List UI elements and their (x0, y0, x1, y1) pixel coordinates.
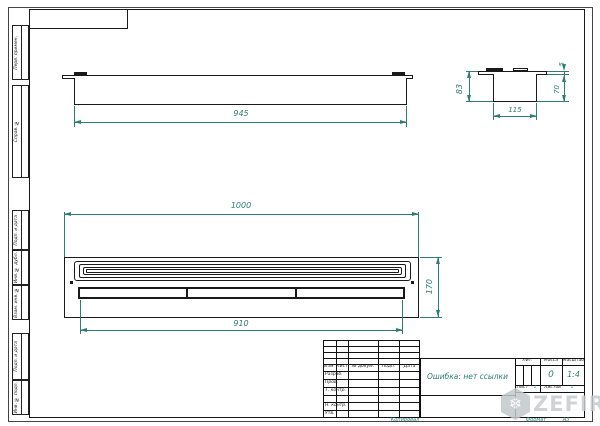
dimension-83: 83 (454, 77, 466, 101)
dimension-line (74, 122, 407, 123)
margin-box-sprav-no: Справ. № (12, 85, 29, 178)
col-izm: Изм. (323, 364, 336, 371)
zefire-logo-icon: ❄ (501, 388, 530, 420)
arrowhead (530, 114, 537, 118)
row-prov: Пров. (323, 379, 349, 387)
divider (21, 286, 22, 319)
screw-dot (411, 281, 414, 284)
grid-line (323, 352, 420, 353)
arrowhead (64, 212, 71, 216)
arrowhead (467, 95, 471, 102)
margin-label: Подп. и дата (14, 341, 19, 372)
grid-line (523, 365, 524, 385)
divider (21, 86, 22, 177)
row-nkontr: Н. контр. (323, 402, 349, 410)
divider (21, 334, 22, 379)
arrowhead (436, 310, 440, 317)
margin-label: Инв. № подл. (14, 382, 19, 413)
tray-divider (295, 288, 297, 298)
scale-label: Масштаб (562, 358, 585, 365)
copied-label: Копировал (375, 418, 435, 423)
arrowhead (412, 212, 419, 216)
margin-label: Взам. инв. № (14, 287, 19, 318)
lower-tray (78, 287, 405, 299)
drawing-sheet: Перв. примен. Справ. № Подп. и дата Инв.… (0, 0, 600, 426)
divider (21, 26, 22, 79)
margin-label: Подп. и дата (14, 215, 19, 246)
margin-box-podp-data-2: Подп. и дата (12, 333, 29, 380)
scale-value: 1:4 (562, 365, 585, 385)
row-blank (323, 395, 349, 402)
screw-dot (70, 281, 73, 284)
margin-box-inv-podl: Инв. № подл. (12, 380, 29, 415)
arrowhead (493, 114, 500, 118)
divider (21, 381, 22, 414)
col-data: Дата (399, 364, 420, 371)
arrowhead (74, 120, 81, 124)
tray-divider (186, 288, 188, 298)
dimension-115: 115 (495, 107, 535, 114)
arrowhead (400, 120, 407, 124)
grid-line (323, 358, 420, 359)
burner-body (74, 78, 407, 105)
mass-label: Масса (540, 358, 562, 365)
margin-box-podp-data-1: Подп. и дата (12, 210, 29, 250)
lit-label: Лит. (515, 358, 540, 365)
row-utv: Утв. (323, 410, 349, 418)
margin-box-vzam-inv: Взам. инв. № (12, 285, 29, 320)
col-list: Лист (336, 364, 348, 371)
extension-line (547, 71, 569, 72)
arrowhead (80, 328, 87, 332)
col-podp: Подп. (378, 364, 399, 371)
divider (21, 251, 22, 284)
zefire-watermark: ❄ ZEFIRE (501, 388, 600, 420)
extension-line (64, 212, 65, 257)
slot-opening (86, 269, 399, 273)
dimension-5: 5 (557, 57, 567, 71)
dimension-910: 910 (211, 320, 271, 328)
dimension-1000: 1000 (211, 202, 271, 210)
row-tkontr: Т. контр. (323, 387, 349, 395)
snowflake-icon: ❄ (509, 396, 522, 412)
dimension-70: 70 (552, 79, 563, 99)
margin-box-inv-dubl: Инв. № дубл. (12, 250, 29, 285)
margin-label: Инв. № дубл. (14, 252, 19, 283)
arrowhead (467, 71, 471, 78)
row-razrab: Разраб. (323, 371, 349, 379)
margin-label: Перв. примен. (14, 36, 19, 70)
dimension-line (64, 214, 419, 215)
mass-value: 0 (540, 365, 562, 385)
extension-line (420, 317, 442, 318)
watermark-text: ZEFIRE (533, 394, 600, 415)
margin-box-perv-primen: Перв. примен. (12, 25, 29, 80)
extension-line (418, 212, 419, 257)
dimension-945: 945 (211, 110, 271, 118)
burner-body (493, 74, 537, 102)
arrowhead (436, 257, 440, 264)
dimension-170: 170 (424, 274, 436, 300)
dimension-line (80, 330, 403, 331)
arrowhead (396, 328, 403, 332)
grid-line (323, 346, 420, 347)
divider (21, 211, 22, 249)
grid-line (531, 365, 532, 385)
col-docnum: № докум. (348, 364, 378, 371)
corner-designation-box (29, 9, 128, 29)
dimension-line (438, 257, 439, 317)
margin-label: Справ. № (14, 120, 19, 142)
